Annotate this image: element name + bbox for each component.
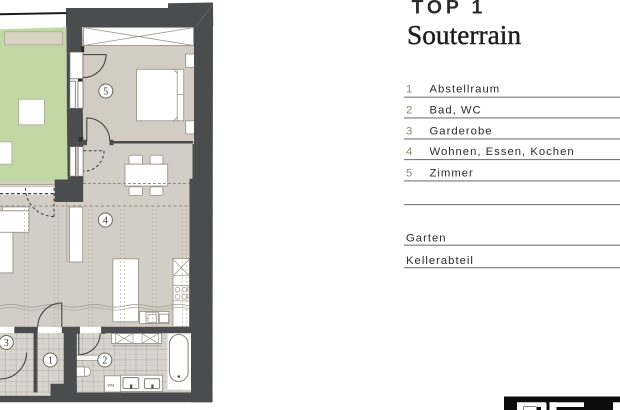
svg-text:WM: WM: [108, 383, 115, 387]
svg-text:4: 4: [406, 146, 413, 158]
svg-text:5: 5: [103, 86, 108, 97]
svg-text:4: 4: [103, 215, 108, 226]
svg-text:Bad, WC: Bad, WC: [430, 104, 482, 116]
svg-text:TOP 1: TOP 1: [412, 0, 487, 19]
svg-text:Garten: Garten: [406, 233, 447, 245]
svg-text:3: 3: [406, 125, 413, 137]
svg-text:Abstellraum: Abstellraum: [430, 84, 501, 96]
svg-text:2: 2: [102, 355, 107, 366]
svg-text:2: 2: [406, 104, 413, 116]
svg-text:Souterrain: Souterrain: [407, 20, 521, 50]
svg-text:Garderobe: Garderobe: [430, 125, 493, 137]
svg-text:1: 1: [406, 84, 413, 96]
svg-text:Wohnen, Essen, Kochen: Wohnen, Essen, Kochen: [430, 146, 575, 158]
svg-text:3: 3: [4, 338, 9, 349]
svg-text:Kellerabteil: Kellerabteil: [406, 255, 474, 267]
svg-text:1: 1: [48, 355, 53, 366]
svg-text:Zimmer: Zimmer: [430, 167, 474, 179]
svg-text:5: 5: [406, 167, 413, 179]
